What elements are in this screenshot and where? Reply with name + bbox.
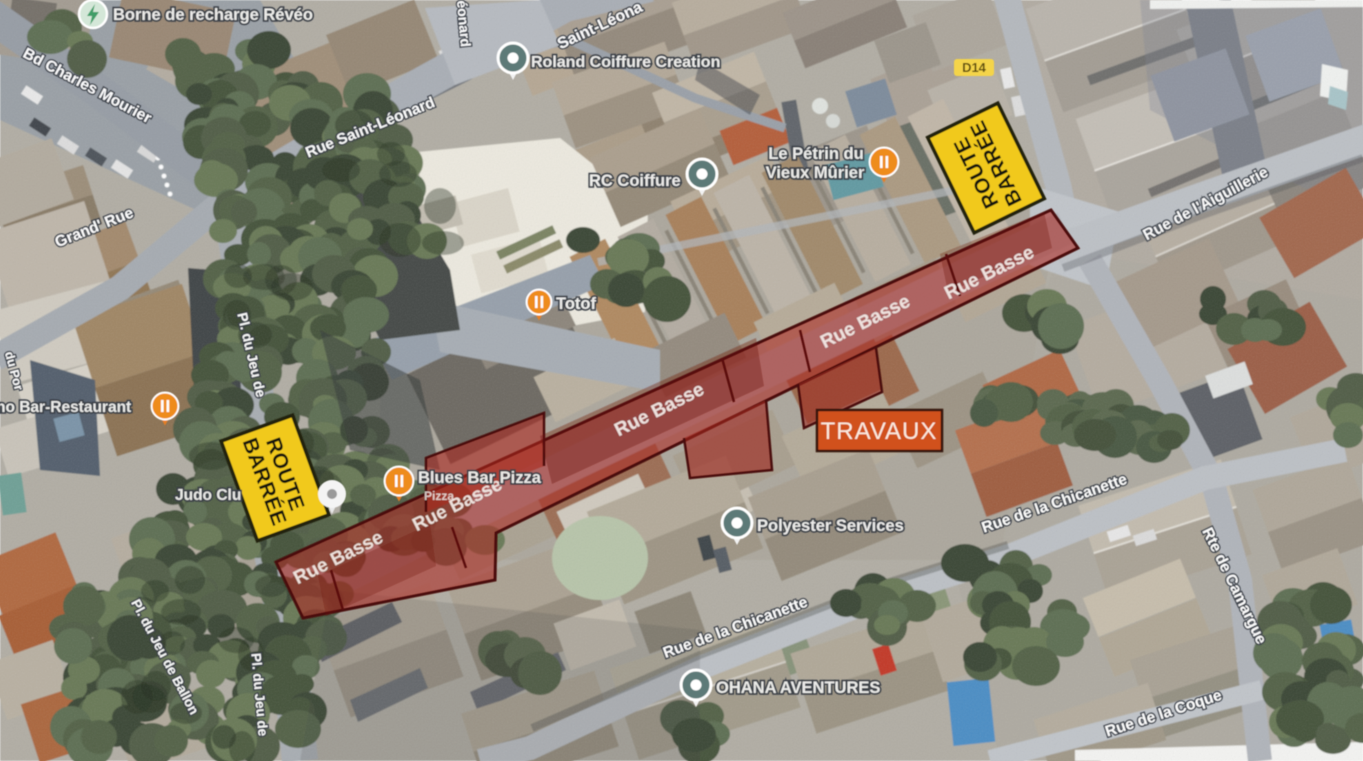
svg-text:Pizza: Pizza <box>424 489 454 503</box>
svg-text:Le Pétrin du: Le Pétrin du <box>768 145 863 163</box>
svg-text:D14: D14 <box>962 60 987 75</box>
svg-text:Blues Bar Pizza: Blues Bar Pizza <box>418 469 542 487</box>
svg-text:no Bar-Restaurant: no Bar-Restaurant <box>0 399 131 416</box>
svg-text:Totof: Totof <box>556 295 597 313</box>
svg-text:Roland Coiffure Creation: Roland Coiffure Creation <box>531 54 720 71</box>
svg-text:OHANA AVENTURES: OHANA AVENTURES <box>716 679 880 697</box>
svg-text:Borne de recharge Révéo: Borne de recharge Révéo <box>113 6 313 24</box>
svg-text:TRAVAUX: TRAVAUX <box>821 418 938 445</box>
svg-text:Vieux Mûrier: Vieux Mûrier <box>766 164 865 182</box>
svg-text:Polyester Services: Polyester Services <box>757 517 904 535</box>
svg-text:Judo Clu: Judo Clu <box>175 487 241 504</box>
svg-text:RC Coiffure: RC Coiffure <box>589 172 681 190</box>
